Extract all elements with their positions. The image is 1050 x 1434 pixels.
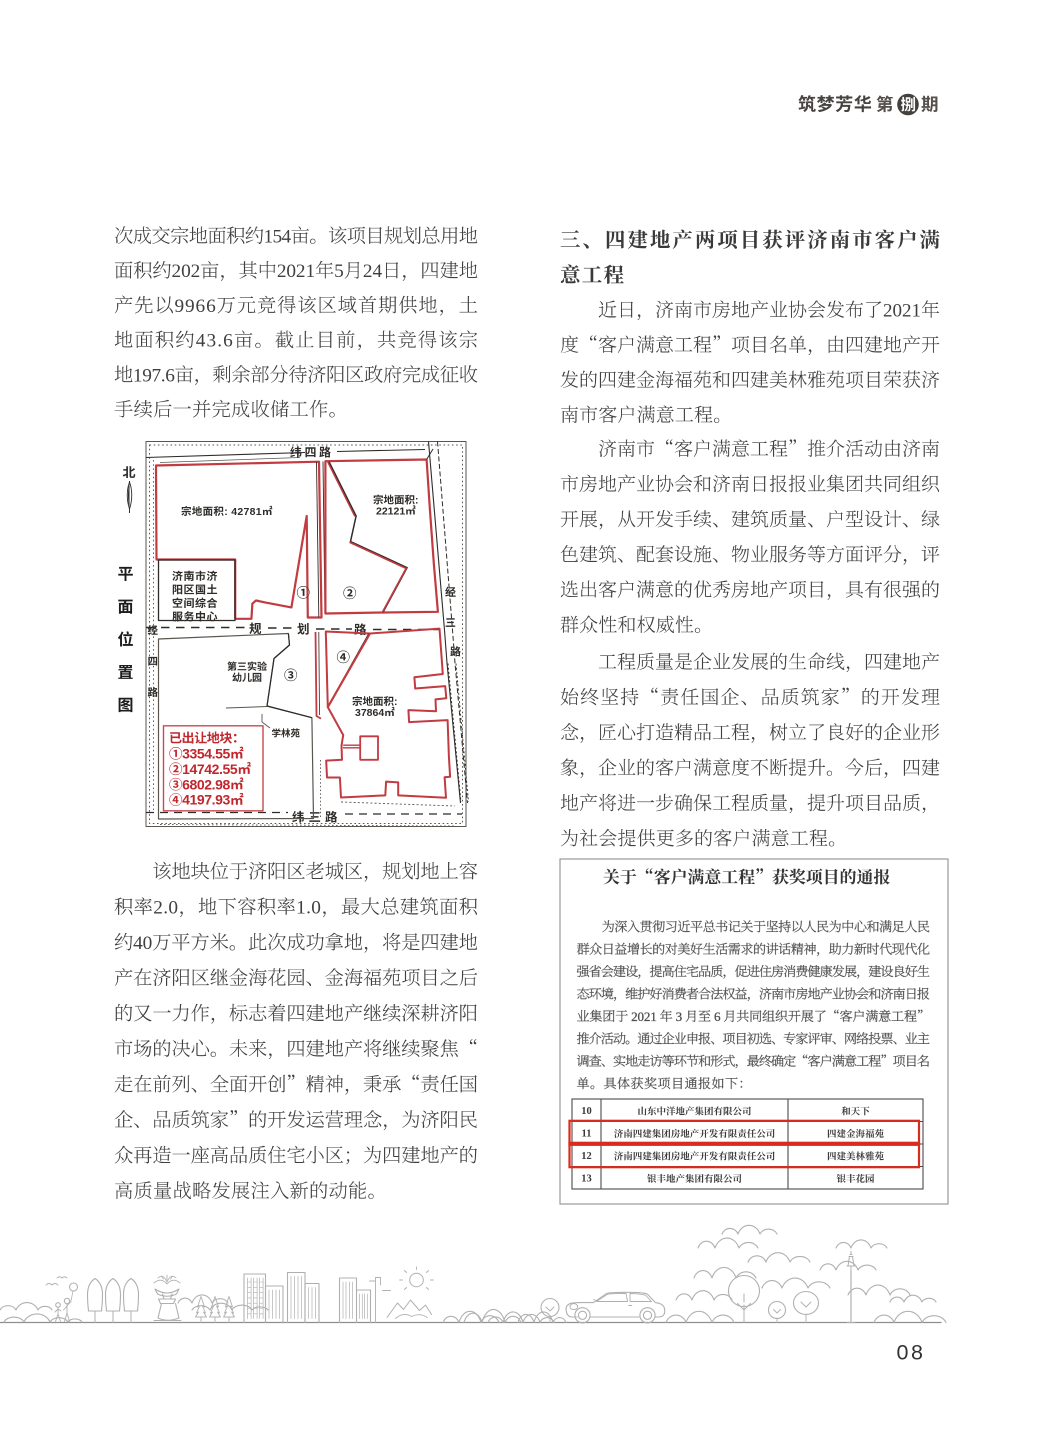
svg-text:08: 08: [897, 1341, 926, 1365]
svg-text:2021: 2021: [631, 1009, 656, 1024]
svg-text:4197.93: 4197.93: [182, 792, 230, 808]
svg-text:3354.55: 3354.55: [182, 746, 230, 762]
svg-text:5: 5: [334, 261, 344, 282]
svg-text::: :: [394, 696, 398, 708]
svg-text:202: 202: [172, 261, 201, 282]
svg-text:2021: 2021: [277, 261, 315, 282]
svg-text::: :: [415, 495, 419, 507]
svg-text:10: 10: [581, 1106, 592, 1117]
svg-text:22121: 22121: [376, 506, 405, 518]
svg-text:43.6: 43.6: [196, 331, 234, 352]
svg-text:40: 40: [133, 933, 152, 954]
svg-text:6802.98: 6802.98: [182, 776, 230, 792]
svg-text:37864: 37864: [355, 707, 384, 719]
svg-text::: :: [224, 506, 228, 518]
svg-text:24: 24: [363, 261, 383, 282]
svg-text:12: 12: [581, 1151, 592, 1162]
svg-text:11: 11: [582, 1129, 592, 1140]
svg-text:6: 6: [714, 1009, 721, 1024]
svg-text:9966: 9966: [175, 296, 217, 317]
svg-text:197.6: 197.6: [133, 365, 175, 386]
svg-text:1.0: 1.0: [296, 898, 321, 919]
svg-text:2.0: 2.0: [153, 898, 178, 919]
svg-text:2021: 2021: [883, 301, 921, 322]
svg-text:3: 3: [676, 1009, 683, 1024]
svg-text:42781: 42781: [231, 506, 262, 518]
svg-text:13: 13: [581, 1174, 592, 1185]
svg-text:14742.55: 14742.55: [182, 761, 238, 777]
svg-text:154: 154: [263, 227, 291, 248]
